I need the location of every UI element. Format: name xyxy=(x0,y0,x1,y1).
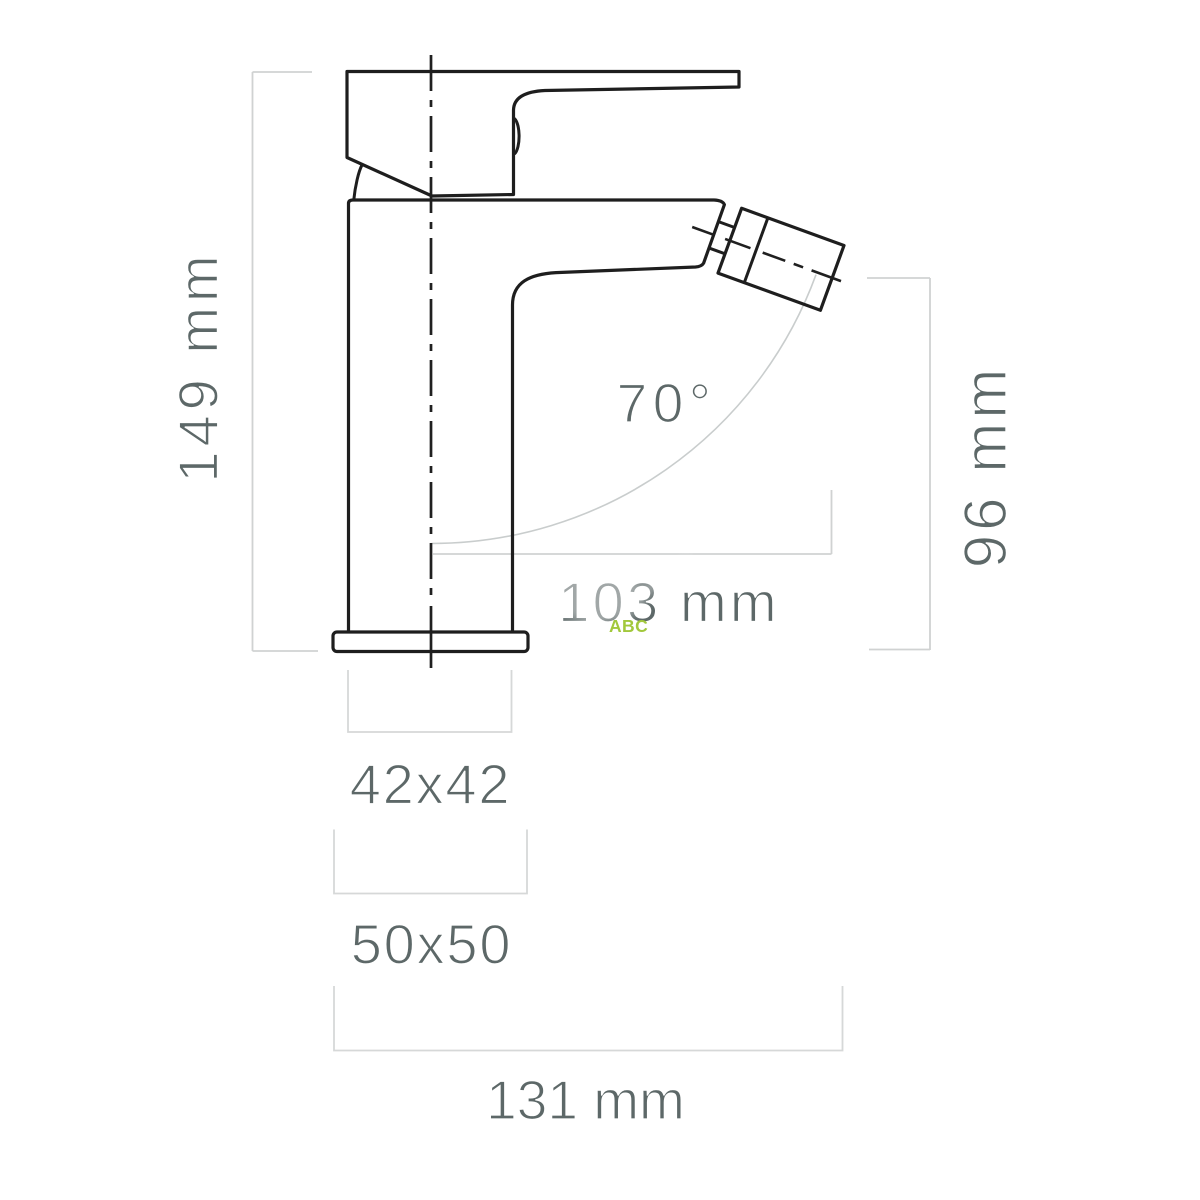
svg-text:70°: 70° xyxy=(617,372,717,434)
svg-text:50x50: 50x50 xyxy=(351,913,513,976)
svg-text:ABC: ABC xyxy=(609,616,648,636)
svg-text:149 mm: 149 mm xyxy=(167,250,230,482)
svg-text:96 mm: 96 mm xyxy=(952,365,1019,568)
svg-text:42x42: 42x42 xyxy=(350,753,512,816)
svg-text:131 mm: 131 mm xyxy=(486,1069,685,1131)
